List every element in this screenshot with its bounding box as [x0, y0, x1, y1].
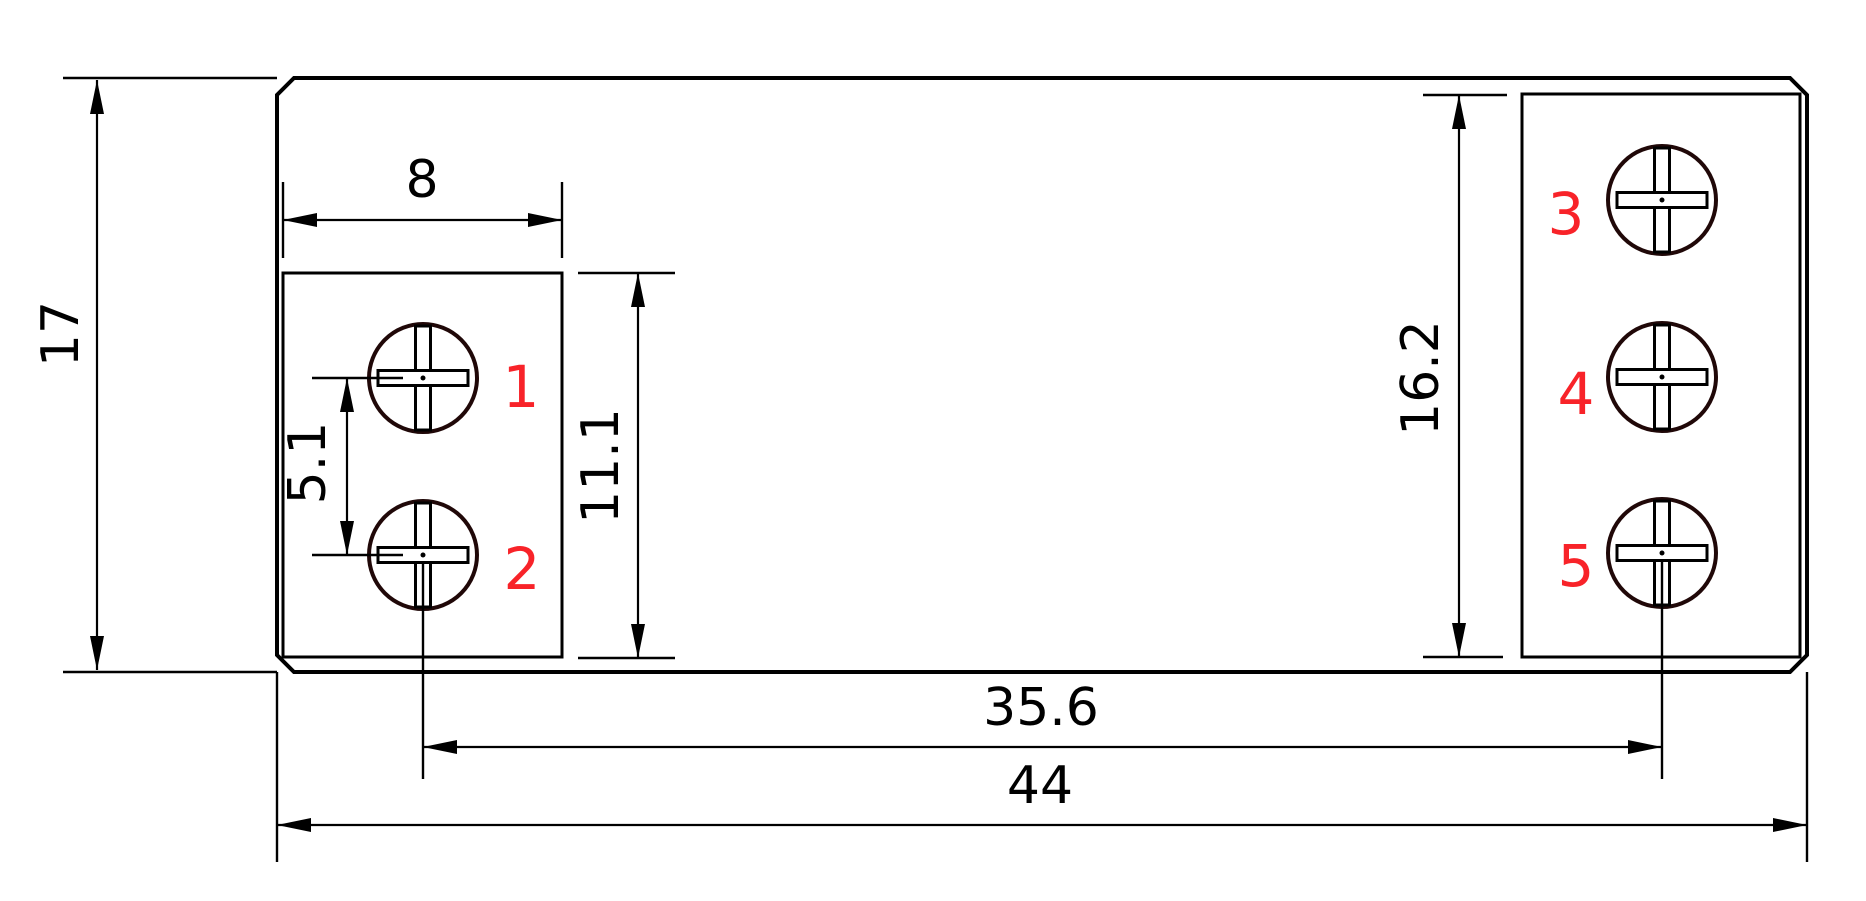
terminal-number-1: 1 — [503, 353, 540, 421]
dim-screw-pitch-arrowhead — [340, 521, 354, 555]
dim-terminal-block-width-label: 8 — [405, 150, 438, 210]
dim-overall-width-arrowhead — [1773, 818, 1807, 832]
screw-center-mark — [1660, 375, 1665, 380]
dim-left-block-height-label: 11.1 — [571, 408, 631, 524]
drawing-canvas: 1234585.111.11716.235.644 — [0, 0, 1866, 901]
dim-overall-height-label: 17 — [31, 301, 91, 367]
dim-left-block-height-arrowhead — [631, 273, 645, 307]
terminal-block-dimension-drawing: 1234585.111.11716.235.644 — [0, 0, 1866, 901]
dim-terminal-block-width-arrowhead — [283, 213, 317, 227]
terminal-number-5: 5 — [1558, 532, 1595, 600]
dim-right-block-height-arrowhead — [1452, 623, 1466, 657]
dim-screw-center-span-label: 35.6 — [983, 678, 1099, 738]
dim-left-block-height-arrowhead — [631, 624, 645, 658]
dim-screw-center-span-arrowhead — [423, 740, 457, 754]
dim-screw-pitch-arrowhead — [340, 378, 354, 412]
screw-center-mark — [1660, 551, 1665, 556]
dim-overall-height-arrowhead — [90, 80, 104, 114]
dim-terminal-block-width-arrowhead — [528, 213, 562, 227]
terminal-number-4: 4 — [1558, 360, 1595, 428]
screw-center-mark — [1660, 198, 1665, 203]
terminal-number-3: 3 — [1548, 180, 1585, 248]
dim-screw-pitch-label: 5.1 — [278, 422, 338, 505]
dim-overall-width-label: 44 — [1007, 756, 1073, 816]
dim-overall-width-arrowhead — [277, 818, 311, 832]
dim-right-block-height-arrowhead — [1452, 95, 1466, 129]
dim-right-block-height-label: 16.2 — [1391, 320, 1451, 436]
screw-center-mark — [421, 376, 426, 381]
dim-overall-height-arrowhead — [90, 636, 104, 670]
dim-screw-center-span-arrowhead — [1628, 740, 1662, 754]
terminal-number-2: 2 — [504, 535, 541, 603]
screw-center-mark — [421, 553, 426, 558]
